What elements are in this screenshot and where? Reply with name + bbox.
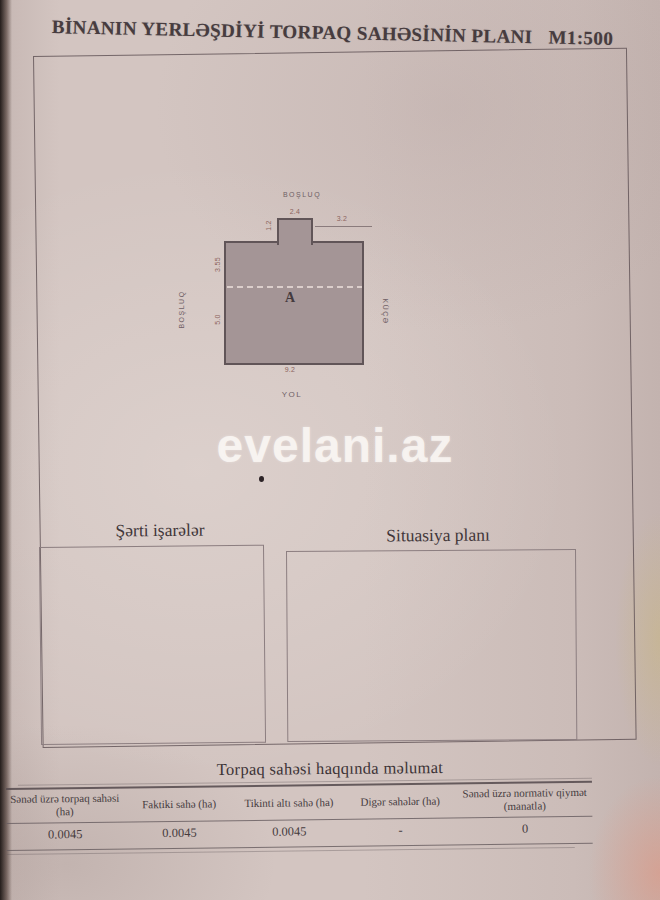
dim-left-upper: 3.55	[214, 248, 221, 282]
page-scale: M1:500	[548, 27, 613, 50]
situation-box	[286, 549, 577, 742]
value-faktiki: 0.0045	[124, 822, 236, 849]
page-title-row: BİNANIN YERLƏŞDİYİ TORPAQ SAHƏSİNİN PLAN…	[40, 16, 625, 50]
dim-left-lower: 5.0	[214, 303, 221, 337]
value-saned-torpaq: 0.0045	[6, 823, 123, 850]
value-tikinti: 0.0045	[235, 820, 344, 847]
dim-extension-line	[315, 226, 372, 227]
legend-section-title: Şərti işarələr	[85, 519, 235, 541]
col-header-normativ: Sənəd üzrə normativ qiymət (manatla)	[457, 783, 592, 818]
watermark: evelani.az	[150, 418, 520, 473]
label-yol-bottom: YOL	[262, 390, 322, 399]
legend-box	[39, 545, 266, 745]
value-normativ: 0	[458, 817, 593, 845]
photo-dark-edge	[0, 0, 12, 900]
dim-top-right-offset: 3.2	[322, 215, 362, 222]
building-footprint-annex	[277, 218, 313, 245]
dim-annex-height: 1.2	[265, 214, 272, 238]
label-boshluq-top: BOŞLUQ	[262, 191, 342, 198]
situation-section-title: Situasiya planı	[358, 524, 518, 546]
info-table: Sənəd üzrə torpaq sahəsi (ha) Faktiki sa…	[6, 781, 593, 852]
ink-speck	[259, 476, 264, 482]
col-header-diger: Digər sahələr (ha)	[343, 784, 458, 819]
dim-annex-width: 2.4	[277, 208, 313, 215]
dim-bottom-width: 9.2	[270, 366, 310, 373]
info-table-title: Torpaq sahəsi haqqında məlumat	[120, 757, 540, 781]
label-kuche-right: KÜÇƏ	[382, 272, 389, 352]
label-boshluq-left: BOŞLUQ	[178, 270, 185, 350]
col-header-faktiki: Faktiki sahə (ha)	[123, 787, 235, 822]
col-header-saned-torpaq: Sənəd üzrə torpaq sahəsi (ha)	[6, 789, 124, 824]
section-divider-dashed	[227, 286, 362, 288]
col-header-tikinti: Tikinti altı sahə (ha)	[235, 786, 344, 821]
info-table-value-row: 0.0045 0.0045 0.0045 - 0	[6, 817, 592, 851]
value-diger: -	[343, 819, 458, 846]
scanned-land-plot-document: BİNANIN YERLƏŞDİYİ TORPAQ SAHƏSİNİN PLAN…	[0, 0, 660, 900]
page-title: BİNANIN YERLƏŞDİYİ TORPAQ SAHƏSİNİN PLAN…	[52, 16, 533, 48]
building-area-label: A	[280, 290, 300, 306]
